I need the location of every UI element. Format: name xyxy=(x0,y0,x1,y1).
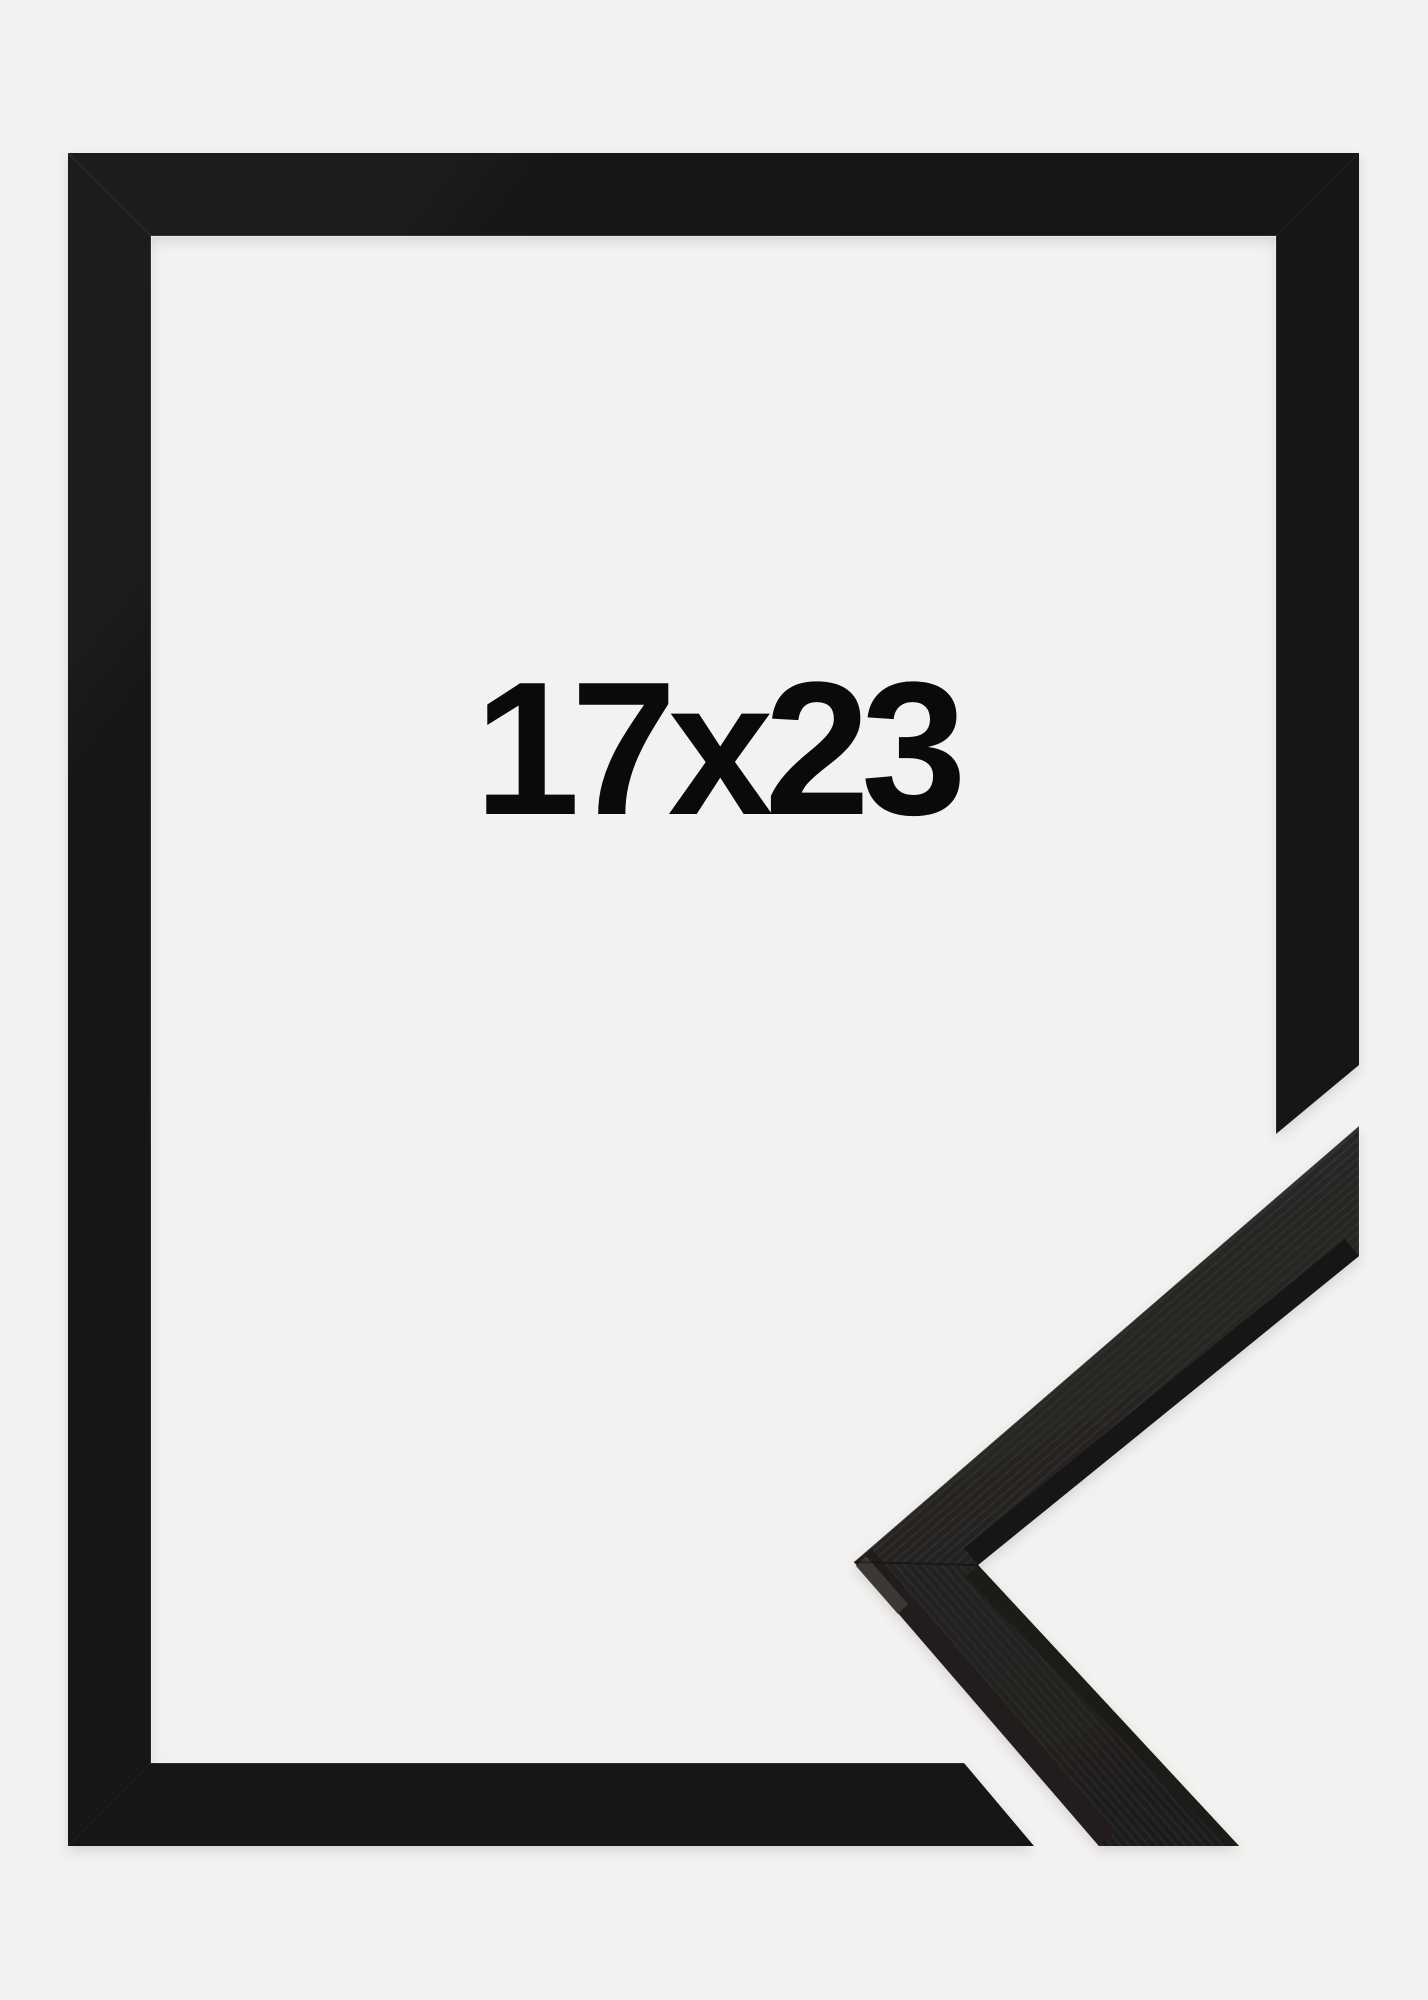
product-photo: 17x23 xyxy=(0,0,1428,2000)
product-image-canvas: 17x23 xyxy=(0,0,1428,2000)
backdrop xyxy=(0,0,1428,2000)
size-label: 17x23 xyxy=(474,643,960,855)
